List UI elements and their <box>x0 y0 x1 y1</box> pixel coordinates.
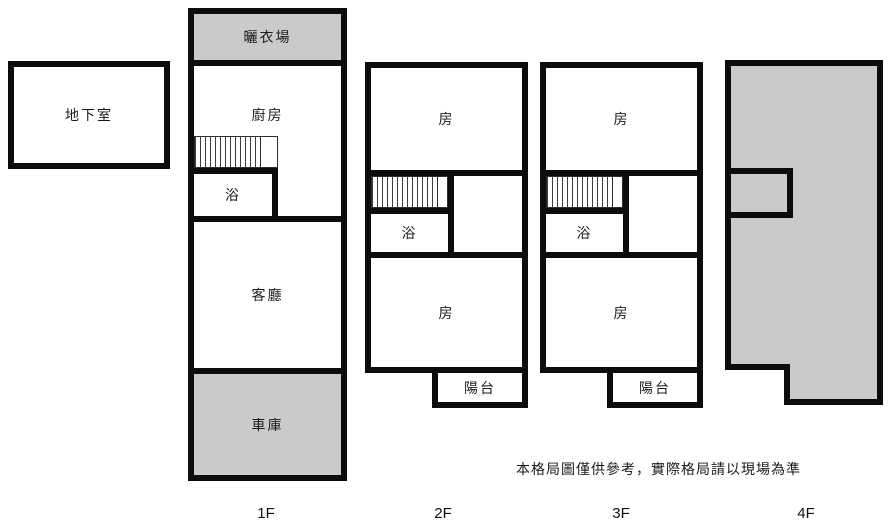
room-bath-2f: 浴 <box>371 214 448 252</box>
room-drying-area: 曬衣場 <box>194 14 341 60</box>
wall-bath-right-3f <box>623 176 629 258</box>
bath-label-2f: 浴 <box>402 223 418 243</box>
room-basement: 地下室 <box>14 67 164 163</box>
room-balcony-2f: 陽台 <box>438 373 522 402</box>
basement-outline: 地下室 <box>8 61 170 169</box>
room-kitchen: 廚房 <box>194 66 341 136</box>
balcony-label-2f: 陽台 <box>464 378 496 398</box>
basement-label: 地下室 <box>65 105 113 125</box>
floor-plan-canvas: 地下室 曬衣場 廚房 浴 客廳 車庫 房 <box>0 0 889 527</box>
floor-tag-4f: 4F <box>797 505 815 522</box>
bath-label-3f: 浴 <box>577 223 593 243</box>
room-bottom-2f: 房 <box>371 258 522 367</box>
room-top-2f: 房 <box>371 68 522 170</box>
bath-label-1f: 浴 <box>225 185 241 205</box>
disclaimer-text: 本格局圖僅供參考，實際格局請以現場為準 <box>516 459 801 479</box>
living-label: 客廳 <box>252 285 284 305</box>
stairs-treads <box>547 177 613 207</box>
room-bottom-label-3f: 房 <box>614 303 630 323</box>
drying-area-label: 曬衣場 <box>244 27 292 47</box>
room-bath-3f: 浴 <box>546 214 623 252</box>
room-bottom-label-2f: 房 <box>439 303 455 323</box>
floor4-stairwell-opening <box>725 168 793 218</box>
stairs-1f <box>194 136 278 168</box>
room-bath-1f: 浴 <box>194 174 272 216</box>
stairs-treads <box>372 177 438 207</box>
room-balcony-3f: 陽台 <box>613 373 697 402</box>
floor-tag-2f: 2F <box>434 505 452 522</box>
stairs-3f <box>546 176 623 208</box>
wall-bath-right-1f <box>272 168 278 222</box>
stairs-treads <box>195 137 261 167</box>
kitchen-label: 廚房 <box>252 105 284 125</box>
room-living: 客廳 <box>194 222 341 368</box>
garage-label: 車庫 <box>252 415 284 435</box>
floor4-outline-lower <box>784 364 883 405</box>
room-top-3f: 房 <box>546 68 697 170</box>
room-top-label-3f: 房 <box>614 109 630 129</box>
floor2-outline: 房 浴 房 <box>365 62 528 373</box>
floor-tag-3f: 3F <box>612 505 630 522</box>
floor3-outline: 房 浴 房 <box>540 62 703 373</box>
floor1-outline: 曬衣場 廚房 浴 客廳 車庫 <box>188 8 347 481</box>
balcony-label-3f: 陽台 <box>639 378 671 398</box>
room-bottom-3f: 房 <box>546 258 697 367</box>
room-top-label-2f: 房 <box>439 109 455 129</box>
stairs-2f <box>371 176 448 208</box>
balcony-3f-outline: 陽台 <box>607 367 703 408</box>
wall-bath-right-2f <box>448 176 454 258</box>
balcony-2f-outline: 陽台 <box>432 367 528 408</box>
room-garage: 車庫 <box>194 374 341 475</box>
floor-tag-1f: 1F <box>257 505 275 522</box>
